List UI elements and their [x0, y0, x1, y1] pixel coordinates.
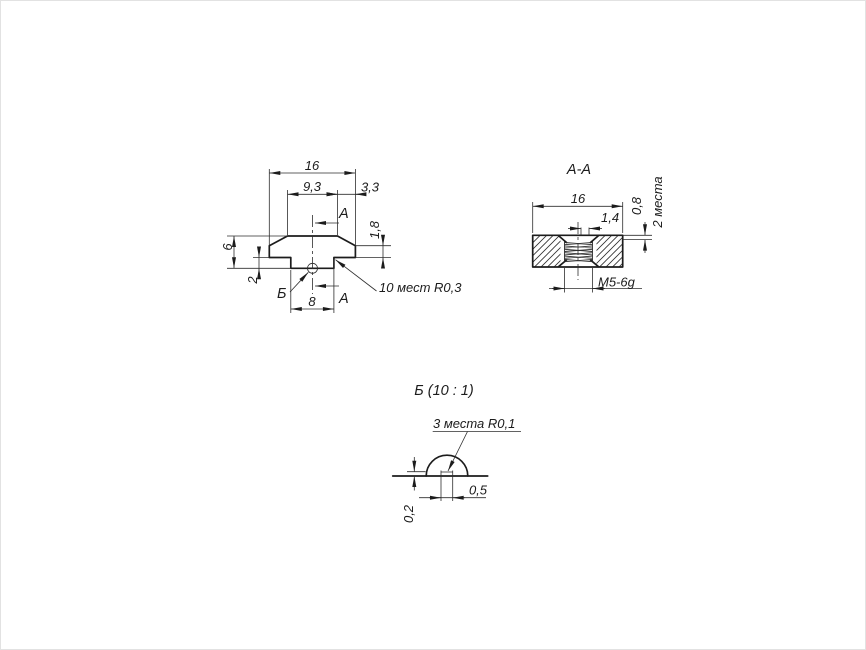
- section-letter-bottom: А: [338, 291, 349, 307]
- section-letter-top: А: [338, 206, 349, 222]
- detail-letter-label: Б: [277, 286, 286, 302]
- thread-callout: М5-6g: [549, 268, 642, 293]
- threaded-hole: [559, 236, 599, 267]
- detail-view-b: Б (10 : 1) 3 места R0,1 0,2 0,5: [393, 383, 521, 523]
- detail-dim-width: 0,5: [419, 471, 488, 502]
- hatch-left: [533, 235, 561, 267]
- detail-dim-0-2-label: 0,2: [401, 504, 416, 523]
- section-dim-1-4-label: 1,4: [601, 210, 619, 225]
- dim-8-label: 8: [308, 294, 316, 309]
- detail-radius-note: 3 места R0,1: [433, 416, 521, 471]
- section-view-title: А-А: [566, 162, 591, 178]
- dim-16-label: 16: [305, 158, 320, 173]
- dim-9-3-label: 9,3: [303, 179, 322, 194]
- detail-dome-arc: [426, 455, 468, 476]
- section-arrow-top: А: [315, 206, 349, 223]
- detail-mark-leader: Б: [277, 272, 308, 302]
- thread-label: М5-6g: [598, 275, 636, 290]
- section-note-places-label: 2 места: [650, 176, 665, 228]
- dim-step-height: 2: [245, 250, 269, 285]
- section-dim-land: 0,8 2 места: [623, 176, 665, 253]
- detail-dim-0-5-label: 0,5: [469, 483, 488, 498]
- detail-radius-note-label: 3 места R0,1: [433, 416, 515, 431]
- dim-chamfer-height: 1,8: [355, 220, 391, 265]
- detail-view-title: Б (10 : 1): [414, 383, 473, 399]
- drawing-sheet: 16 9,3 3,3 6 2: [0, 0, 866, 650]
- fillet-note-label: 10 мест R0,3: [379, 280, 462, 295]
- dim-3-3-label: 3,3: [361, 180, 380, 195]
- section-view-a-a: А-А 16 1,4: [533, 162, 665, 293]
- dim-6-label: 6: [220, 243, 235, 251]
- section-dim-16-label: 16: [571, 191, 586, 206]
- section-arrow-bottom: А: [315, 286, 349, 307]
- section-dim-offset: 1,4: [568, 210, 619, 235]
- dim-1-8-label: 1,8: [367, 220, 382, 239]
- detail-dim-depth: 0,2: [401, 457, 426, 523]
- engineering-drawing: 16 9,3 3,3 6 2: [1, 1, 866, 650]
- front-view: 16 9,3 3,3 6 2: [220, 158, 462, 313]
- fillet-note: 10 мест R0,3: [336, 260, 463, 295]
- section-dim-0-8-label: 0,8: [629, 196, 644, 215]
- dim-2-label: 2: [245, 276, 260, 285]
- hatch-right: [597, 235, 623, 267]
